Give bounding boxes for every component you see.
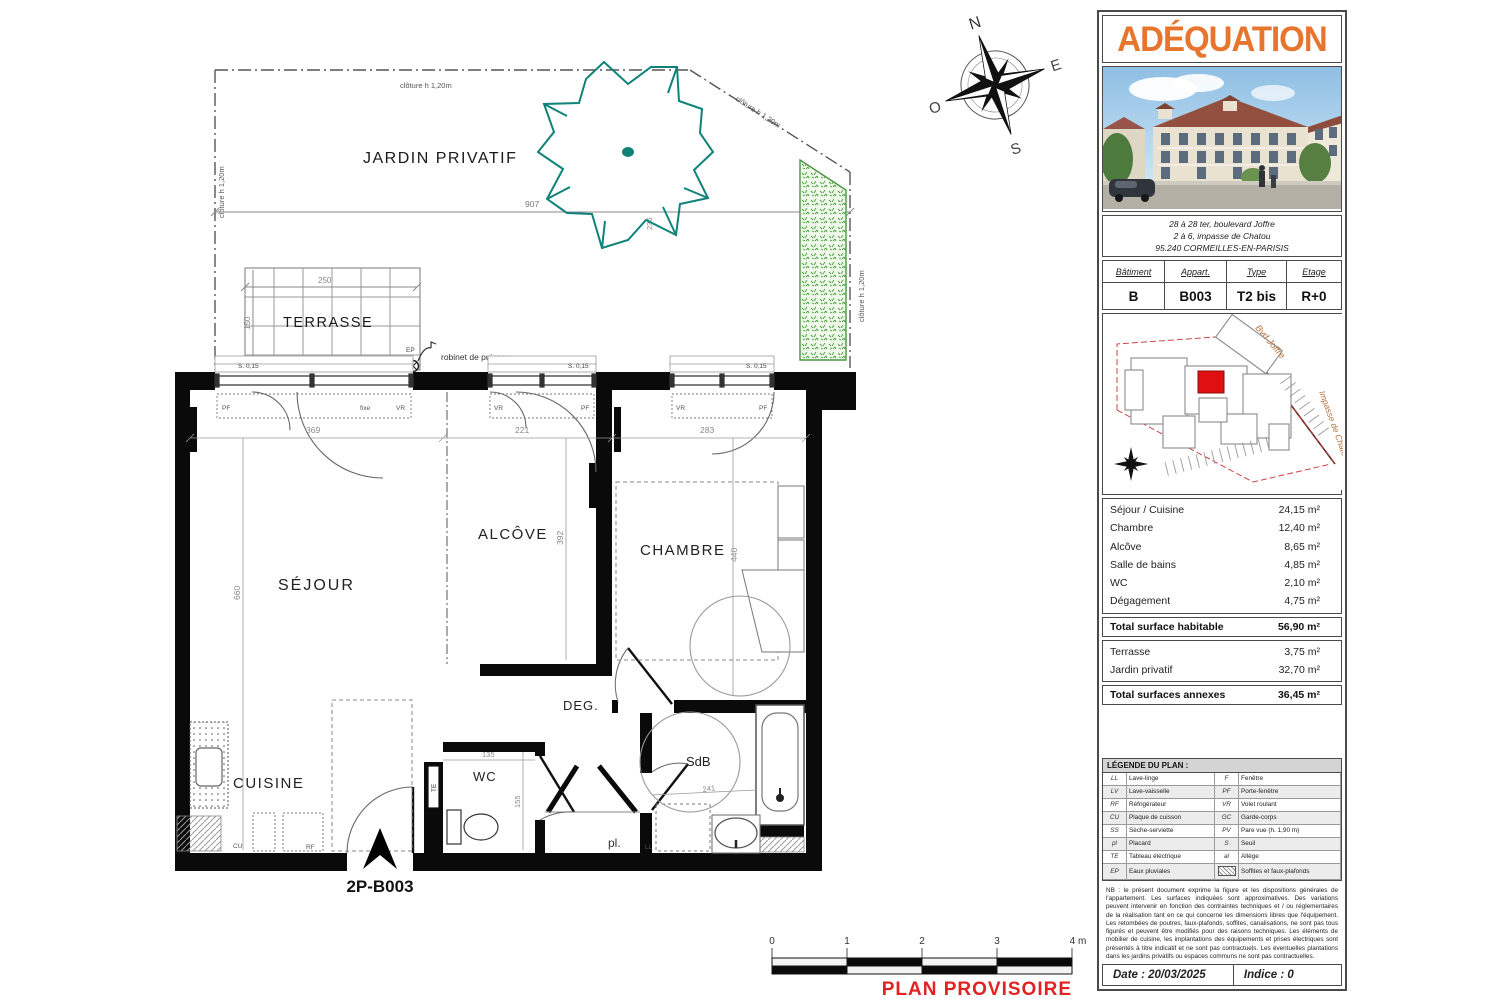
surface-row: Dégagement4,75 m² [1103, 592, 1341, 610]
room-sdb: SdB [686, 754, 711, 769]
surface-row: WC2,10 m² [1103, 574, 1341, 592]
compass-o: O [927, 98, 943, 118]
dim-chambre-w: 283 [700, 425, 714, 435]
legend-table: LLLave-lingeFFenêtre LVLave-vaissellePFP… [1103, 773, 1341, 880]
surface-row: Terrasse3,75 m² [1103, 643, 1341, 661]
building-photo-illustration [1103, 67, 1342, 209]
room-chambre: CHAMBRE [640, 542, 726, 559]
cu-label: CU [233, 843, 243, 850]
win2-pf: PF [581, 405, 589, 412]
terrace-dim-w: 250 [318, 276, 332, 285]
scale-2: 2 [919, 936, 925, 947]
dim-sdb-w: 241 [702, 783, 716, 794]
win1-fixe: fixe [360, 405, 371, 412]
address-line-2: 2 à 6, impasse de Chatou [1174, 230, 1271, 242]
fence-label-top: clôture h 1,20m [400, 81, 452, 90]
unit-header-etage: Etage [1287, 261, 1341, 283]
project-photo [1102, 66, 1342, 212]
sill-label-2: S. 0,15 [568, 363, 589, 370]
corner-hatch-kitchen [177, 816, 221, 851]
bathtub [756, 705, 804, 825]
hedge [800, 160, 846, 360]
soffit-hatch-swatch [1218, 866, 1236, 876]
fence-label-right: clôture h 1,20m [857, 270, 866, 322]
unit-header-batiment: Bâtiment [1103, 261, 1165, 283]
highlighted-unit [1198, 371, 1224, 393]
tree [538, 62, 713, 248]
address-line-1: 28 à 28 ter, boulevard Joffre [1169, 218, 1275, 230]
date-indice-row: Date : 20/03/2025 Indice : 0 [1102, 964, 1342, 986]
dim-sejour-w: 369 [306, 425, 320, 435]
unit-info-table: Bâtiment Appart. Type Etage B B003 T2 bi… [1102, 260, 1342, 310]
compass-rose-icon: N E S O [906, 0, 1084, 179]
compass-e: E [1049, 56, 1064, 75]
dim-wc-w: 135 [482, 750, 495, 759]
compass-n: N [967, 14, 983, 34]
adequation-logo: ADÉQUATION [1117, 18, 1326, 59]
plan-provisoire-label: PLAN PROVISOIRE [882, 979, 1072, 999]
unit-value-appart: B003 [1165, 283, 1227, 309]
scale-0: 0 [769, 936, 775, 947]
floorplan-sheet: { "plan": { "garden": { "label": "JARDIN… [0, 0, 1500, 999]
scale-4: 4 m [1070, 936, 1087, 947]
surface-row: Séjour / Cuisine24,15 m² [1103, 501, 1341, 519]
surface-row: Chambre12,40 m² [1103, 519, 1341, 537]
entrance-ref: 2P-B003 [346, 877, 413, 896]
room-cuisine: CUISINE [233, 775, 304, 792]
surfaces-table: Séjour / Cuisine24,15 m² Chambre12,40 m²… [1102, 498, 1342, 614]
dim-alcove-w: 221 [515, 425, 529, 435]
entrance-arrow-icon [363, 828, 397, 869]
unit-value-batiment: B [1103, 283, 1165, 309]
garden-dim-label: 907 [525, 199, 539, 209]
site-plan-box: Bvd Joffre Impasse de Chatou [1102, 313, 1342, 495]
win3-pf: PF [759, 405, 767, 412]
legend-box: LÉGENDE DU PLAN : LLLave-lingeFFenêtre L… [1102, 758, 1342, 881]
total-annex-row: Total surfaces annexes 36,45 m² [1102, 685, 1342, 705]
room-ll: LL [645, 844, 653, 851]
window-sills [215, 356, 774, 372]
ep-label: EP [406, 347, 415, 354]
compass-s: S [1008, 140, 1023, 159]
indice-field: Indice : 0 [1234, 965, 1341, 985]
floor-plan-drawing: clôture h 1,20m clôture h 1,20m clôture … [0, 0, 1090, 999]
surface-row: Salle de bains4,85 m² [1103, 556, 1341, 574]
logo-box: ADÉQUATION [1102, 15, 1342, 63]
scale-3: 3 [994, 936, 1000, 947]
room-deg: DEG. [563, 698, 599, 713]
bed-furniture [616, 482, 804, 660]
dim-chambre-h: 440 [729, 548, 739, 562]
total-habitable-row: Total surface habitable 56,90 m² [1102, 617, 1342, 637]
washbasin [712, 815, 760, 853]
scale-bar: 0 1 2 3 4 m [769, 936, 1086, 974]
scale-1: 1 [844, 936, 850, 947]
unit-header-appart: Appart. [1165, 261, 1227, 283]
panel-spacer [1102, 708, 1342, 758]
garden-label: JARDIN PRIVATIF [363, 150, 517, 167]
date-field: Date : 20/03/2025 [1103, 965, 1234, 985]
win3-vr: VR [676, 405, 685, 412]
sill-label-3: S. 0,15 [746, 363, 767, 370]
dim-wc-h: 155 [513, 795, 522, 808]
room-placard: pl. [608, 836, 621, 850]
unit-header-type: Type [1227, 261, 1287, 283]
unit-value-type: T2 bis [1227, 283, 1287, 309]
address-line-3: 95.240 CORMEILLES-EN-PARISIS [1155, 242, 1289, 254]
rf-label: RF [306, 844, 315, 851]
unit-value-etage: R+0 [1287, 283, 1341, 309]
room-sejour: SÉJOUR [278, 575, 355, 594]
legend-title: LÉGENDE DU PLAN : [1103, 759, 1341, 773]
room-alcove: ALCÔVE [478, 526, 548, 543]
win1-pf: PF [222, 405, 230, 412]
garden-dim [211, 208, 854, 216]
sejour-furniture [332, 700, 412, 851]
fence-label-left: clôture h 1,20m [217, 166, 226, 218]
corner-hatch-sdb [758, 837, 804, 852]
site-plan-drawing: Bvd Joffre Impasse de Chatou [1103, 314, 1343, 490]
terrace-dim-h: 150 [243, 316, 252, 330]
annex-surfaces-table: Terrasse3,75 m² Jardin privatif32,70 m² [1102, 640, 1342, 683]
sill-label-1: S. 0,15 [238, 363, 259, 370]
terrace-label: TERRASSE [283, 315, 373, 331]
win2-vr: VR [494, 405, 503, 412]
window-door-swings [252, 392, 1063, 999]
dim-alcove-h: 392 [555, 531, 565, 545]
fence-label-diagonal: clôture h 1,20m [734, 94, 782, 130]
surface-row: Alcôve8,65 m² [1103, 538, 1341, 556]
toilet [447, 810, 498, 844]
te-label: TE [431, 783, 438, 792]
surface-row: Jardin privatif32,70 m² [1103, 661, 1341, 679]
title-block-panel: ADÉQUATION [1097, 10, 1347, 991]
dim-sejour-h: 660 [232, 586, 242, 600]
room-wc: WC [473, 769, 497, 784]
win1-vr: VR [396, 405, 405, 412]
nb-disclaimer: NB : le présent document exprime la figu… [1102, 884, 1342, 964]
address-box: 28 à 28 ter, boulevard Joffre 2 à 6, imp… [1102, 215, 1342, 257]
